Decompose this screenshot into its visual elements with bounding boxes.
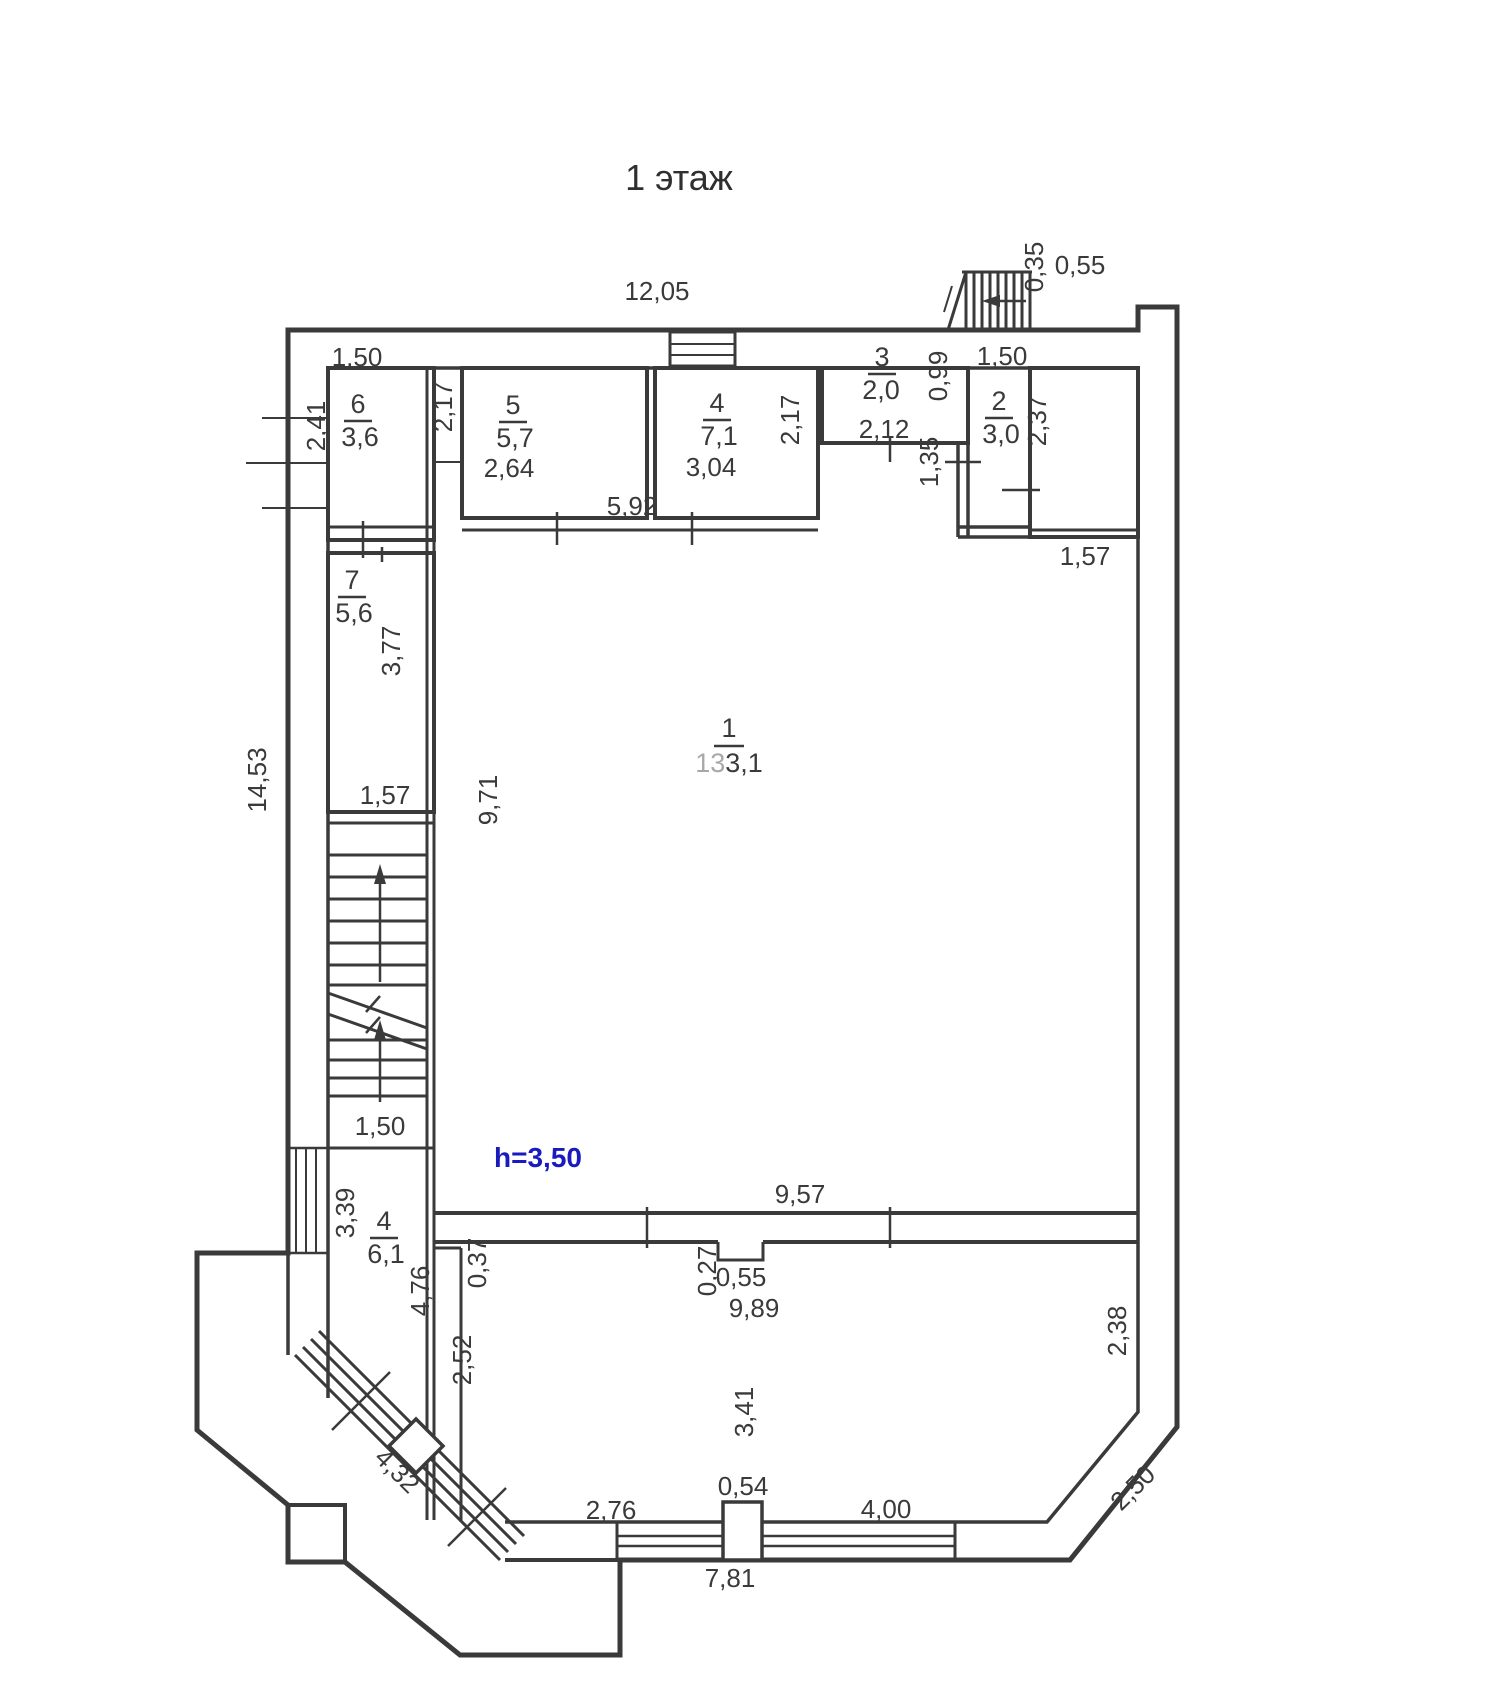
room-area: 3,0 xyxy=(982,419,1020,449)
room-number: 1 xyxy=(721,713,736,743)
dimension-label: 9,89 xyxy=(729,1293,780,1323)
floor-plan: 1 133,1 2 3,0 3 2,0 4 7,1 5 5,7 6 3,6 xyxy=(0,0,1500,1697)
room-number: 5 xyxy=(505,390,520,420)
staircase-interior xyxy=(328,855,427,1102)
dimension-label: 0,37 xyxy=(462,1238,492,1289)
dimension-label: 1,57 xyxy=(360,780,411,810)
dimension-label: 1,50 xyxy=(355,1111,406,1141)
stair-treads-lower xyxy=(328,1040,427,1096)
room-area: 2,0 xyxy=(862,375,900,405)
top-wall-window xyxy=(670,332,735,366)
dimension-label: 2,76 xyxy=(586,1495,637,1525)
dimension-label: 2,37 xyxy=(1022,396,1052,447)
porch-column xyxy=(723,1502,762,1560)
room-area: 6,1 xyxy=(367,1239,405,1269)
room-number: 4 xyxy=(709,388,724,418)
dimension-label: 9,57 xyxy=(775,1179,826,1209)
dimension-label: 2,41 xyxy=(301,401,331,452)
room-label-6: 6 3,6 xyxy=(341,389,379,452)
dimension-label: 0,55 xyxy=(1055,250,1106,280)
room-6-walls xyxy=(328,368,434,540)
dimension-label: 9,71 xyxy=(473,775,503,826)
room-number: 4 xyxy=(376,1206,391,1236)
dimension-label: 3,39 xyxy=(330,1188,360,1239)
ext-stair-slant xyxy=(948,272,966,330)
room-area: 5,7 xyxy=(496,423,534,453)
railing-bottom-ends xyxy=(617,1522,955,1560)
floor-title: 1 этаж xyxy=(625,157,733,198)
dimension-label: 4,76 xyxy=(405,1266,435,1317)
dimension-label: 0,99 xyxy=(923,351,953,402)
page: 1 133,1 2 3,0 3 2,0 4 7,1 5 5,7 6 3,6 xyxy=(0,0,1500,1697)
room-area: 5,6 xyxy=(335,598,373,628)
dimension-label: 2,38 xyxy=(1102,1306,1132,1357)
room-label-4-bottom: 4 6,1 xyxy=(367,1206,405,1269)
dimension-label: 2,12 xyxy=(859,414,910,444)
room-label-1: 1 133,1 xyxy=(695,713,763,778)
dimension-label: 2,17 xyxy=(775,395,805,446)
dimension-label: 12,05 xyxy=(624,276,689,306)
room-area: 7,1 xyxy=(700,421,738,451)
dimension-label: 7,81 xyxy=(705,1563,756,1593)
dimension-label: 0,35 xyxy=(1019,242,1049,293)
room-area: 3,6 xyxy=(341,422,379,452)
bay-column xyxy=(288,1505,345,1562)
left-wall-lower-window-glazing xyxy=(296,1148,316,1253)
dimension-label: 2,17 xyxy=(428,382,458,433)
room-label-7: 7 5,6 xyxy=(335,565,373,628)
room-area: 133,1 xyxy=(695,748,763,778)
dimension-label: 1,50 xyxy=(332,342,383,372)
ceiling-height-note: h=3,50 xyxy=(494,1142,582,1173)
stair-arrow-upper-head xyxy=(374,864,386,884)
dimension-label: 3,04 xyxy=(686,452,737,482)
dimension-label: 5,92 xyxy=(607,491,658,521)
dimension-label: 4,00 xyxy=(861,1494,912,1524)
room-number: 2 xyxy=(991,386,1006,416)
room-number: 6 xyxy=(350,389,365,419)
room-label-3: 3 2,0 xyxy=(862,342,900,405)
dimension-label: 1,50 xyxy=(977,341,1028,371)
room-area-prefix: 13 xyxy=(695,748,725,778)
dimension-label: 14,53 xyxy=(242,747,272,812)
room-label-4-top: 4 7,1 xyxy=(700,388,738,451)
room-area-suffix: 3,1 xyxy=(725,748,763,778)
dimension-label: 2,64 xyxy=(484,453,535,483)
dimension-label: 0,55 xyxy=(716,1262,767,1292)
room-number: 3 xyxy=(874,342,889,372)
dimension-label: 1,35 xyxy=(914,437,944,488)
room-2-walls xyxy=(1030,368,1138,537)
dimension-label: 1,57 xyxy=(1060,541,1111,571)
room1-bottom-wall-notch xyxy=(718,1242,763,1260)
dimension-label: 0,54 xyxy=(718,1471,769,1501)
railing-bottom-lines xyxy=(617,1536,955,1546)
ext-stair-slash xyxy=(944,286,952,312)
inner-wall-right-and-bottom xyxy=(505,368,1138,1522)
left-wall-lower-window-ends xyxy=(288,1148,328,1253)
dimension-label: 3,41 xyxy=(729,1387,759,1438)
dimension-label: 3,77 xyxy=(376,626,406,677)
dimension-label: 2,52 xyxy=(447,1335,477,1386)
room-label-5: 5 5,7 xyxy=(496,390,534,453)
room-number: 7 xyxy=(344,565,359,595)
room-label-2: 2 3,0 xyxy=(982,386,1020,449)
